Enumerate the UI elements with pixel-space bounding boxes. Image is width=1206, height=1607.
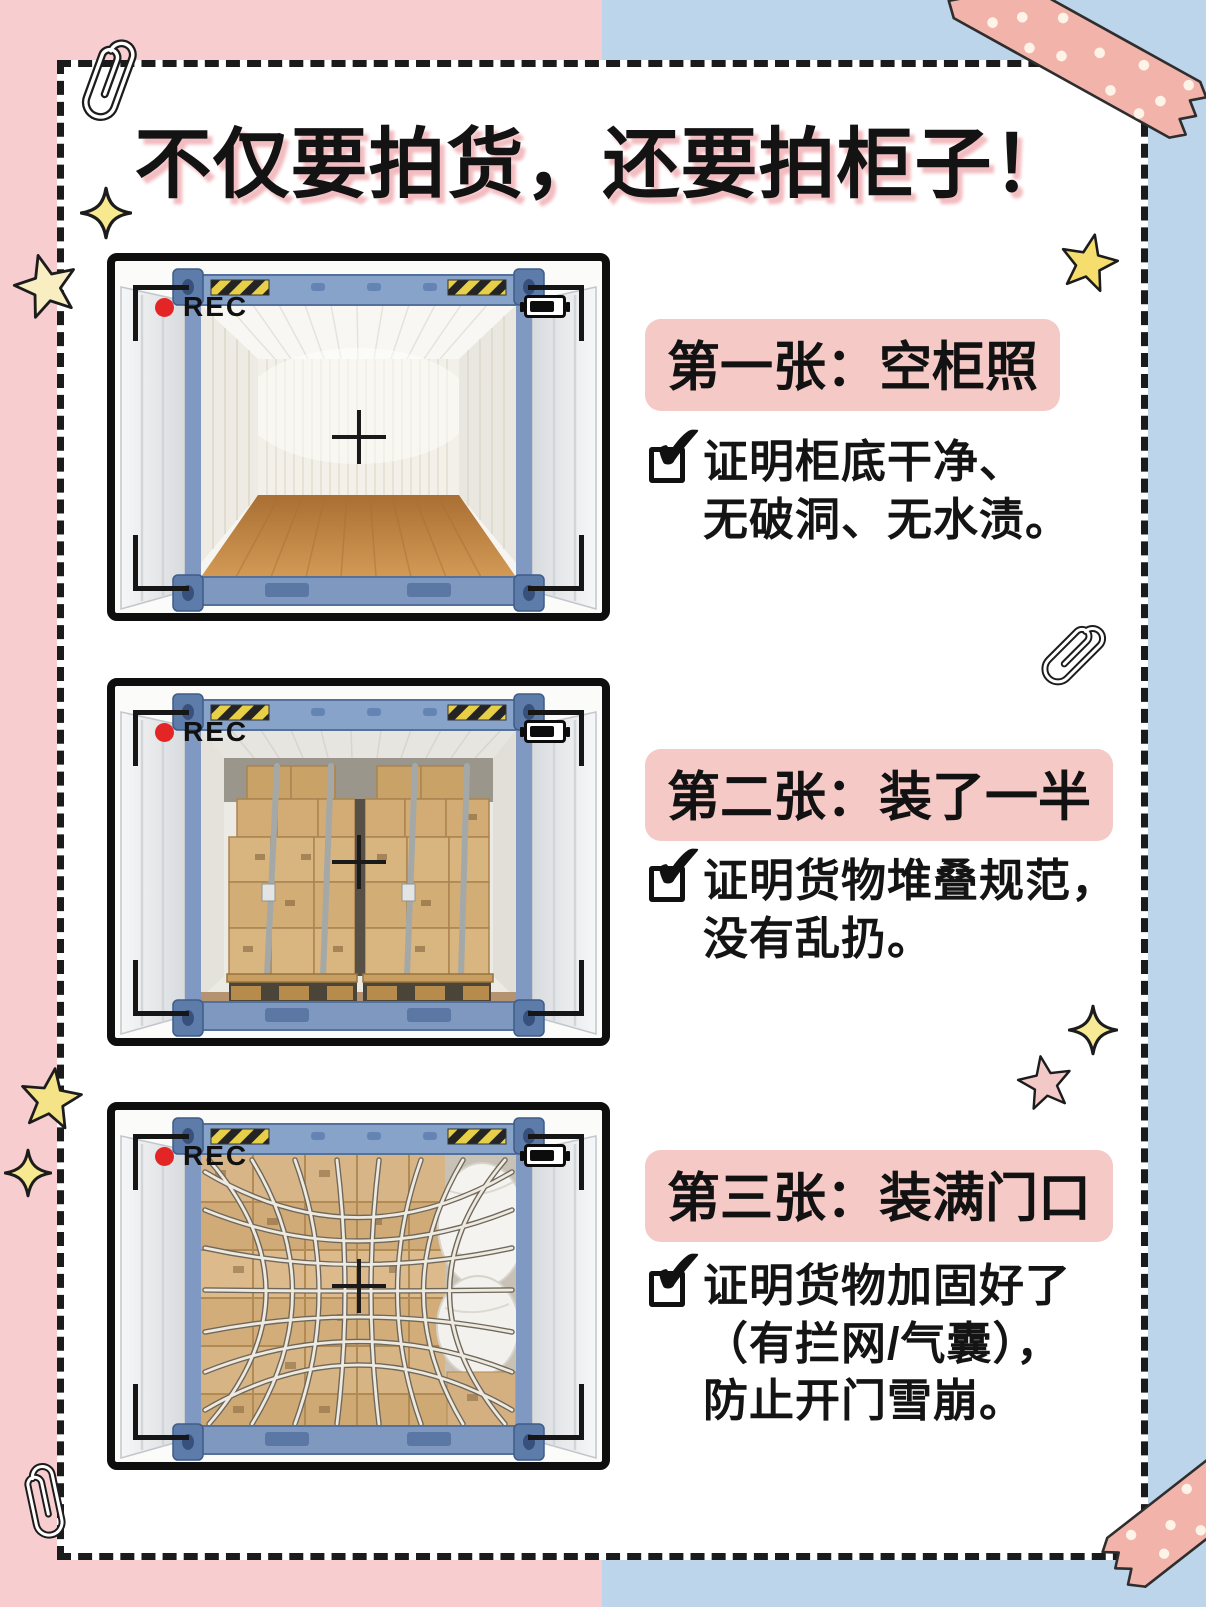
crosshair-icon [332,835,386,889]
photo-fully-loaded: REC [107,1102,610,1470]
viewfinder-bracket [528,960,584,1016]
star-icon [1052,226,1125,298]
checkbox-icon: ✔ [649,866,685,902]
star-icon [1012,1049,1079,1114]
photo-half-loaded: REC [107,678,610,1046]
rec-label: REC [183,291,248,323]
battery-fill [530,726,554,737]
section-point-2: ✔ 证明货物堆叠规范， 没有乱扔。 [649,852,1117,967]
rec-indicator: REC [155,1140,248,1172]
crosshair-icon [332,410,386,464]
battery-icon [524,720,566,743]
section-point-3: ✔ 证明货物加固好了 （有拦网/气囊）， 防止开门雪崩。 [649,1257,1071,1430]
text-line: 证明柜底干净、 [703,433,1071,491]
star-icon [14,1062,88,1135]
checkbox-icon: ✔ [649,1271,685,1307]
viewfinder-bracket [133,535,189,591]
text-line: 防止开门雪崩。 [703,1372,1071,1430]
viewfinder-bracket [133,960,189,1016]
poster-card: 不仅要拍货，还要拍柜子！ REC [57,60,1148,1560]
photo-empty-container: REC [107,253,610,621]
section-text-1: 证明柜底干净、 无破洞、无水渍。 [703,433,1071,548]
viewfinder-bracket [133,1384,189,1440]
battery-icon [524,295,566,318]
section-point-1: ✔ 证明柜底干净、 无破洞、无水渍。 [649,433,1071,548]
text-line: （有拦网/气囊）， [703,1315,1071,1373]
viewfinder-bracket [528,1384,584,1440]
rec-dot-icon [155,1147,174,1166]
text-line: 无破洞、无水渍。 [703,491,1071,549]
check-icon: ✔ [652,835,706,899]
battery-fill [530,301,554,312]
rec-indicator: REC [155,291,248,323]
check-icon: ✔ [652,416,706,480]
rec-label: REC [183,1140,248,1172]
battery-fill [530,1150,554,1161]
viewfinder-bracket [528,535,584,591]
text-line: 没有乱扔。 [703,910,1117,968]
rec-label: REC [183,716,248,748]
battery-icon [524,1144,566,1167]
sparkle-icon [4,1148,52,1198]
section-heading-3: 第三张：装满门口 [645,1150,1113,1242]
checkbox-icon: ✔ [649,447,685,483]
section-heading-1: 第一张：空柜照 [645,319,1060,411]
section-text-3: 证明货物加固好了 （有拦网/气囊）， 防止开门雪崩。 [703,1257,1071,1430]
rec-indicator: REC [155,716,248,748]
section-heading-2: 第二张：装了一半 [645,749,1113,841]
rec-dot-icon [155,723,174,742]
crosshair-icon [332,1259,386,1313]
text-line: 证明货物堆叠规范， [703,852,1117,910]
rec-dot-icon [155,298,174,317]
text-line: 证明货物加固好了 [703,1257,1071,1315]
check-icon: ✔ [652,1240,706,1304]
sparkle-icon [80,186,132,240]
page-title: 不仅要拍货，还要拍柜子！ [64,103,1141,214]
sparkle-icon [1068,1004,1118,1056]
section-text-2: 证明货物堆叠规范， 没有乱扔。 [703,852,1117,967]
